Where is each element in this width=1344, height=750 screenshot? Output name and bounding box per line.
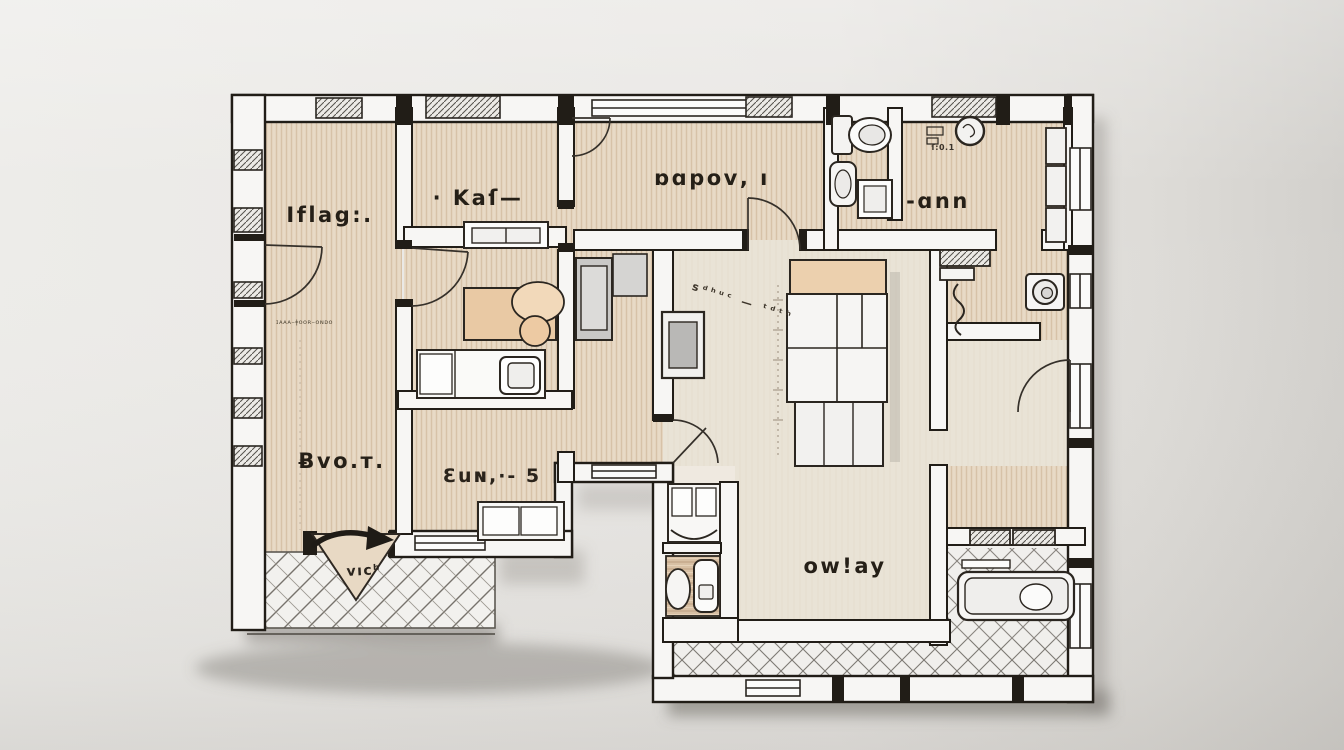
- wall-mid-a: [574, 230, 748, 250]
- wall-living-bottom: [722, 620, 950, 642]
- window-left-1: [234, 150, 262, 170]
- room-label-owlay: ow!ay: [803, 554, 886, 578]
- sofa-sectional: [787, 260, 900, 466]
- window-right-3: [1070, 364, 1091, 428]
- window-left-5: [234, 398, 262, 418]
- basin-fixture: [858, 180, 892, 218]
- wall-v2-mid: [558, 250, 574, 408]
- room-label-top-left: Iflag:.: [286, 203, 373, 227]
- wall-v2-lower: [558, 452, 574, 482]
- window-left-2: [234, 208, 262, 232]
- kitchen-counter: [417, 350, 545, 398]
- wall-hall-right: [947, 323, 1040, 340]
- room-label-ann: -ɑnn: [906, 189, 970, 213]
- window-left-6: [234, 446, 262, 466]
- window-notch: [592, 465, 656, 478]
- floor-plan-canvas: Iflag:. · Kaſ— ɒɑpoᴠ, ı -ɑnn Ƀvo.ᴛ. Ɛuɴ,…: [0, 0, 1344, 750]
- toilet-fixture: [832, 116, 891, 154]
- wall-bottom-right-block: [653, 676, 1093, 702]
- wall-clock-icon: [956, 117, 984, 145]
- tv-unit: [662, 312, 704, 378]
- scale-note: ſ:0.1: [931, 143, 954, 152]
- window-bottom-1: [746, 680, 800, 696]
- floor-plan-stage: Iflag:. · Kaſ— ɒɑpoᴠ, ı -ɑnn Ƀvo.ᴛ. Ɛuɴ,…: [0, 0, 1344, 750]
- window-left-3: [234, 282, 262, 298]
- window-top-1: [316, 98, 362, 118]
- room-label-eun: Ɛuɴ,·- 5: [443, 465, 541, 487]
- room-label-oupov: ɒɑpoᴠ, ı: [654, 166, 770, 190]
- wall-v1-lower: [396, 300, 412, 534]
- window-right-2: [1070, 274, 1091, 308]
- bathtub-fixture: [958, 572, 1074, 620]
- room-label-kax: · Kaſ—: [433, 186, 524, 210]
- sink-fixture: [830, 162, 856, 206]
- window-top-3: [746, 97, 792, 117]
- dim-note: ɪᴀᴀᴀ–ǂᴏᴏʀ–ᴏɴᴅᴏ: [276, 318, 333, 326]
- window-right-1: [1070, 148, 1091, 210]
- wall-wc-bottom: [663, 618, 738, 642]
- window-left-4: [234, 348, 262, 364]
- washer-unit: [1026, 274, 1064, 310]
- floor-lobby: [947, 466, 1070, 530]
- bench-eun: [478, 502, 564, 540]
- wc-shelf: [663, 543, 721, 553]
- window-leftblock-bottom: [415, 536, 485, 550]
- bed-unit: [464, 282, 564, 346]
- window-top-2: [426, 96, 500, 118]
- floor-right-cream: [933, 340, 1070, 466]
- entry-label: ᴠıcʰ: [346, 562, 381, 580]
- floor-room-kax: [404, 108, 566, 238]
- kax-sill-cabinet: [464, 222, 548, 248]
- wall-v5-lower: [930, 465, 947, 645]
- window-top-4: [932, 97, 996, 117]
- closet-panels: [1046, 128, 1066, 242]
- floor-room-top-left: [248, 108, 402, 554]
- room-label-bottom-left: Ƀvo.ᴛ.: [298, 449, 385, 473]
- wc-cabinet: [666, 556, 720, 616]
- wc-basin: [668, 484, 720, 542]
